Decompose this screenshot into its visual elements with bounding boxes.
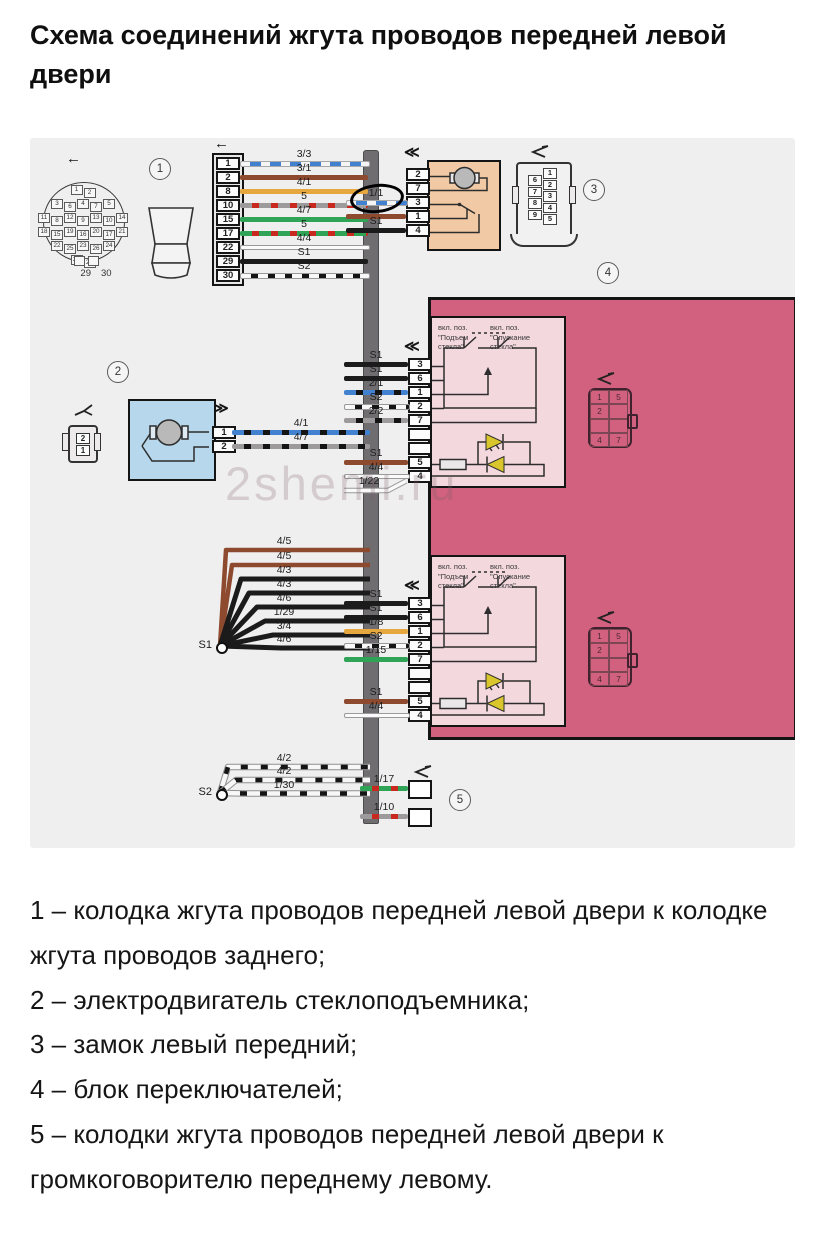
round-pin-cell: 4	[77, 199, 89, 209]
pin-cell: 1	[408, 625, 432, 638]
switch-inner-box-lower: вкл. поз."Подъемстекла"вкл. поз."Опускан…	[430, 555, 566, 727]
face-row: 47	[590, 433, 630, 447]
wire-label: S1	[344, 363, 408, 376]
round-pin-cell: 9	[77, 216, 89, 226]
arrow-left-icon: ←	[214, 138, 229, 151]
wire-label: S1	[344, 349, 408, 362]
pin-cell: 2	[406, 168, 430, 181]
round-pin-cell: 11	[38, 213, 50, 223]
wire-line	[346, 228, 406, 233]
legend-item: 4 – блок переключателей;	[30, 1067, 792, 1112]
bundle-wire-label: 4/2	[256, 752, 312, 764]
wire-1/10: 1/10	[360, 801, 408, 819]
wire-label: S1	[344, 447, 408, 460]
connector-3-right-column: 12345	[543, 168, 557, 226]
round-pin-cell: 24	[103, 241, 115, 251]
round-face-row: 2225232624	[51, 241, 115, 254]
connector-tab	[94, 433, 101, 451]
legend-item: 3 – замок левый передний;	[30, 1022, 792, 1067]
pin-cell: 29	[216, 255, 240, 268]
bundle-wire-label: 1/29	[256, 606, 312, 618]
round-pin-cell: 1	[71, 185, 83, 195]
pin-cell	[408, 428, 432, 441]
wiring-diagram: ← ← ≪ ≪ ≪ ≫ 1 2 3 4 5 123647511812913101…	[30, 138, 795, 848]
splice-label-s2: S2	[186, 786, 212, 798]
door-lock-block	[427, 160, 501, 251]
bundle-wire-label: 4/3	[256, 578, 312, 590]
pin-cell: 15	[216, 213, 240, 226]
wire-label: S1	[240, 246, 368, 259]
wire-2/2: 2/2	[344, 405, 408, 423]
round-pin-cell: 6	[64, 202, 76, 212]
pin-cell: 7	[408, 653, 432, 666]
wire-line	[344, 418, 408, 423]
round-pin-cell: 2	[84, 188, 96, 198]
round-face-row: 118129131014	[38, 213, 128, 226]
wire-line	[240, 273, 370, 279]
bundle-wire-label: 4/6	[256, 592, 312, 604]
switch-pin-block-upper: 3612754	[408, 358, 432, 483]
lock-circuit	[429, 162, 493, 244]
pin-cell: 17	[216, 227, 240, 240]
face-cell: 7	[609, 433, 628, 447]
connector-tab	[627, 653, 638, 668]
face-cell: 1	[590, 629, 609, 643]
round-pin-cell: 19	[64, 227, 76, 237]
face-cell	[590, 419, 609, 433]
pin-cell: 4	[406, 224, 430, 237]
connector-3-base	[510, 234, 578, 247]
face-cell	[590, 658, 609, 672]
connector-tab	[88, 256, 99, 266]
page-title: Схема соединений жгута проводов передней…	[30, 16, 770, 94]
pin-cell: 6	[528, 175, 542, 186]
face-row: 2	[590, 643, 630, 657]
callout-4: 4	[597, 262, 619, 284]
wire-line	[344, 657, 408, 662]
round-face-row: 18151916201721	[38, 227, 128, 240]
round-pin-cell: 26	[90, 244, 102, 254]
wire-line	[360, 786, 408, 791]
connector-arrow-icon	[594, 371, 616, 386]
pin-cell: 7	[528, 187, 542, 198]
round-pin-cell: 18	[38, 227, 50, 237]
wire-label: 4/4	[344, 461, 408, 474]
splice-wire	[220, 793, 370, 794]
pin-cell: 9	[528, 210, 542, 221]
connector-tab	[569, 186, 576, 204]
pin-cell	[408, 442, 432, 455]
connector-arrow-icon	[411, 764, 433, 779]
connector-arrow-icon	[72, 404, 94, 419]
pin-cell: 2	[408, 639, 432, 652]
wire-label: 1/17	[360, 773, 408, 786]
face-cell	[609, 404, 628, 418]
wire-label: S2	[344, 391, 408, 404]
connector-arrow-icon	[594, 610, 616, 625]
wire-label: S2	[240, 260, 368, 273]
wire-label: 1/8	[344, 616, 408, 629]
pin-cell: 1	[408, 386, 432, 399]
wire-S1: S1	[346, 215, 406, 233]
wire-label	[346, 201, 406, 214]
face-cell: 2	[590, 643, 609, 657]
pin-cell: 7	[408, 414, 432, 427]
callout-3: 3	[583, 179, 605, 201]
legend-item: 1 – колодка жгута проводов передней лево…	[30, 888, 792, 977]
pin-cell: 6	[408, 372, 432, 385]
round-pin-cell: 14	[116, 213, 128, 223]
pin-cell: 1	[543, 168, 557, 179]
round-pin-cell: 13	[90, 213, 102, 223]
switch-circuit	[432, 557, 559, 720]
face-row: 47	[590, 672, 630, 686]
wire-label: 3/1	[240, 162, 368, 175]
wire-S2: S2	[240, 260, 368, 279]
wire-1/17: 1/17	[360, 773, 408, 791]
pin-cell	[408, 667, 432, 680]
face-cell	[609, 658, 628, 672]
bundle-wire-label: 1/30	[256, 779, 312, 791]
round-pin-cell: 25	[64, 244, 76, 254]
switch-pin-block-lower: 3612754	[408, 597, 432, 722]
window-motor-block	[128, 399, 216, 481]
wire-label: 3/3	[240, 148, 368, 161]
round-pin-cell: 7	[90, 202, 102, 212]
splice-wire	[220, 793, 370, 794]
wire-label: 2/2	[344, 405, 408, 418]
face-cell: 5	[609, 629, 628, 643]
bundle-wire-label: 4/6	[256, 633, 312, 645]
face-row: 15	[590, 629, 630, 643]
bundle-wire-label: 3/4	[256, 620, 312, 632]
speaker-connector-box	[408, 808, 432, 827]
pin-cell: 1	[76, 445, 90, 456]
splice-wire	[220, 793, 370, 794]
round-pin-cell: 20	[90, 227, 102, 237]
round-pin-cell: 8	[51, 216, 63, 226]
pin-cell: 7	[406, 182, 430, 195]
round-face-row: 12	[71, 185, 96, 198]
pin-cell: 30	[216, 269, 240, 282]
face-cell	[609, 643, 628, 657]
face-cell: 5	[609, 390, 628, 404]
tab-label: 29	[80, 268, 91, 279]
face-row	[590, 658, 630, 672]
round-pin-cell: 23	[77, 241, 89, 251]
wire-label: 4/4	[344, 700, 408, 713]
splice-point-s1	[216, 642, 228, 654]
round-pin-cell: 17	[103, 230, 115, 240]
connector-arrow-icon	[528, 144, 550, 159]
face-cell: 2	[590, 404, 609, 418]
face-row: 2	[590, 404, 630, 418]
pin-cell: 2	[76, 433, 90, 444]
pin-cell: 2	[408, 400, 432, 413]
callout-1: 1	[149, 158, 171, 180]
face-cell: 4	[590, 672, 609, 686]
bundle-wire-label: 4/5	[256, 550, 312, 562]
switch-connector-face-upper: 15247	[588, 388, 632, 448]
bundle-wire-label: 4/3	[256, 564, 312, 576]
wire-line	[360, 814, 408, 819]
wire-label: S1	[346, 215, 406, 228]
pin-cell: 3	[406, 196, 430, 209]
wire-label: S1	[344, 588, 408, 601]
round-face-row: 36475	[51, 199, 115, 212]
pin-cell: 22	[216, 241, 240, 254]
round-pin-cell: 3	[51, 199, 63, 209]
round-pin-cell: 12	[64, 213, 76, 223]
pin-cell: 6	[408, 611, 432, 624]
wire-label: S2	[344, 630, 408, 643]
face-row	[590, 419, 630, 433]
pin-cell: 2	[543, 180, 557, 191]
pin-cell: 4	[408, 470, 432, 483]
connector-tab	[512, 186, 519, 204]
pin-cell: 3	[543, 191, 557, 202]
pin-cell: 1	[216, 157, 240, 170]
tab-label: 30	[101, 268, 112, 279]
wire-1/15: 1/15	[344, 644, 408, 662]
face-cell: 7	[609, 672, 628, 686]
round-pin-cell: 15	[51, 230, 63, 240]
splice-label-s1: S1	[186, 639, 212, 651]
pin-cell: 10	[216, 199, 240, 212]
wire-4/4: 4/4	[344, 700, 408, 718]
arrow-left-icon: ←	[66, 152, 81, 166]
switch-inner-box-upper: вкл. поз."Подъемстекла"вкл. поз."Опускан…	[430, 316, 566, 488]
wire-label: S1	[344, 686, 408, 699]
pin-cell: 8	[216, 185, 240, 198]
callout-5: 5	[449, 789, 471, 811]
pin-cell: 2	[216, 171, 240, 184]
pin-cell: 3	[408, 597, 432, 610]
pin-cell: 8	[528, 198, 542, 209]
pin-cell: 1	[406, 210, 430, 223]
motor-circuit	[130, 401, 209, 474]
round-pin-cell: 5	[103, 199, 115, 209]
round-pin-cell: 10	[103, 216, 115, 226]
wire-label: 1/22	[346, 475, 392, 487]
lock-pin-block: 27314	[406, 168, 430, 237]
face-cell	[609, 419, 628, 433]
callout-2: 2	[107, 361, 129, 383]
switch-circuit	[432, 318, 559, 481]
splice-point-s2	[216, 789, 228, 801]
connector-tab	[62, 433, 69, 451]
bundle-wire-label: 4/2	[256, 765, 312, 777]
face-row: 15	[590, 390, 630, 404]
connector-1-tab-labels: 2930	[66, 268, 126, 279]
bundle-wire-label: 4/5	[256, 535, 312, 547]
pin-cell: 5	[408, 695, 432, 708]
connector-tab	[627, 414, 638, 429]
speaker-connector-box	[408, 780, 432, 799]
legend-item: 5 – колодки жгута проводов передней лево…	[30, 1112, 792, 1201]
face-cell: 1	[590, 390, 609, 404]
double-chevron-left-icon: ≪	[404, 146, 420, 160]
legend: 1 – колодка жгута проводов передней лево…	[30, 888, 792, 1201]
connector-3-face: 6789 12345	[516, 162, 572, 238]
wire-label: 4/7	[232, 431, 370, 444]
round-pin-cell: 22	[51, 241, 63, 251]
pin-cell: 3	[408, 358, 432, 371]
connector-3-left-column: 6789	[528, 175, 542, 221]
wire-label: S1	[344, 602, 408, 615]
round-pin-cell: 21	[116, 227, 128, 237]
pin-cell: 4	[408, 709, 432, 722]
wire-label: 1/10	[360, 801, 408, 814]
pin-cell: 4	[543, 203, 557, 214]
wire-label: 2/1	[344, 377, 408, 390]
wire-label: 4/4	[240, 232, 368, 245]
wire-line	[344, 713, 410, 718]
switch-connector-face-lower: 15247	[588, 627, 632, 687]
legend-item: 2 – электродвигатель стеклоподъемника;	[30, 978, 792, 1023]
pin-cell	[408, 681, 432, 694]
connector-tab	[74, 256, 85, 266]
pin-cell: 5	[408, 456, 432, 469]
round-pin-cell: 16	[77, 230, 89, 240]
pin-cell: 5	[543, 214, 557, 225]
face-cell: 4	[590, 433, 609, 447]
grommet-shape	[143, 206, 199, 280]
wire-label: 1/15	[344, 644, 408, 657]
connector-1-round-face: 1236475118129131014181519162017212225232…	[43, 182, 125, 262]
